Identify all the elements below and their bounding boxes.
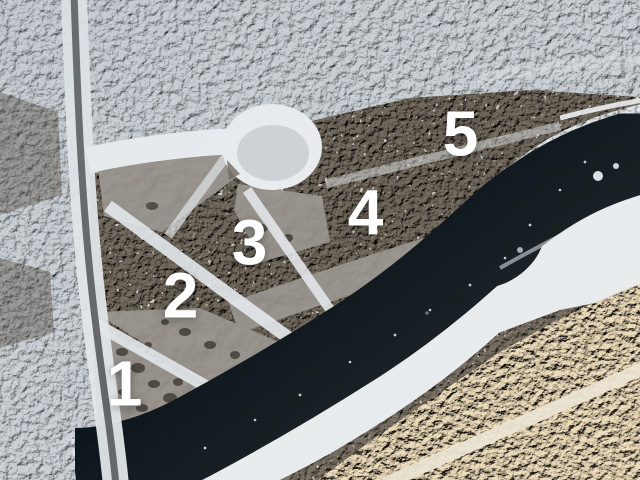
aerial-scene [0,0,640,480]
light-vignette [0,0,640,480]
aerial-photo: 1 2 3 4 5 [0,0,640,480]
